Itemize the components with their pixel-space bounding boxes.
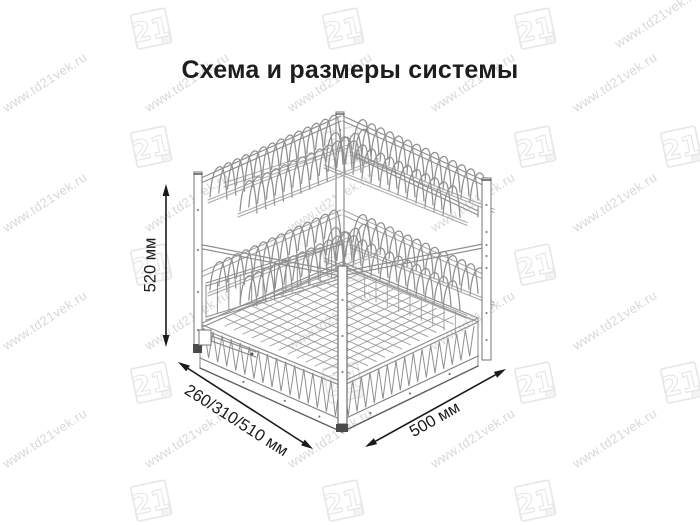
height-dimension-arrow — [163, 184, 170, 347]
page-title: Схема и размеры системы — [0, 56, 700, 85]
upper-tier-rack — [201, 115, 494, 225]
schematic-page: www.td21vek.ruwww.td21vek.ruwww.td21vek.… — [0, 0, 700, 525]
height-dimension-label: 520 мм — [142, 238, 161, 293]
